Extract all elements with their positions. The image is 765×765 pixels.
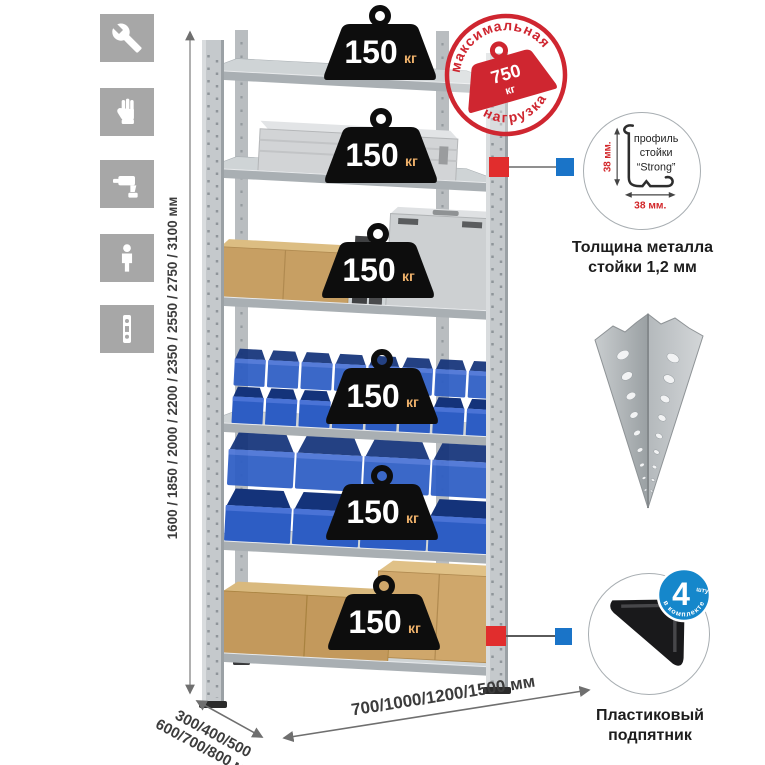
svg-text:кг: кг [404,50,417,66]
profile-caption-line1: Толщина металла [535,238,750,258]
blue-marker-square [556,158,574,176]
profile-callout-connector [489,157,574,177]
depth-dimension-label: 300/400/500 600/700/800 мм [153,701,266,765]
profile-width-dim: 38 мм. [634,201,666,212]
svg-text:150: 150 [348,604,401,640]
foot-caption-line1: Пластиковый [550,706,750,726]
included-count-badge: 4 штуки в комплекте [656,567,712,623]
profile-label: “Strong” [637,162,676,174]
svg-text:150: 150 [346,378,399,414]
svg-text:150: 150 [344,34,397,70]
foot-caption-line2: подпятник [550,726,750,746]
profile-caption: Толщина металла стойки 1,2 мм [535,238,750,278]
svg-text:150: 150 [342,252,395,288]
upright-profile-image [585,300,715,520]
svg-text:кг: кг [402,268,415,284]
product-infographic: 1600 / 1850 / 2000 / 2200 / 2350 / 2550 … [0,0,765,765]
profile-height-dim: 38 мм. [602,141,613,172]
foot-caption: Пластиковый подпятник [550,706,750,746]
shelf-weight-badge: 150 кг [324,8,436,80]
svg-text:кг: кг [406,510,419,526]
blue-marker-square [555,628,572,645]
profile-label: стойки [640,147,673,159]
svg-text:кг: кг [408,620,421,636]
badge-count: 4 [672,576,690,612]
profile-caption-line2: стойки 1,2 мм [535,258,750,278]
svg-text:кг: кг [405,153,418,169]
foot-callout-connector [486,626,572,646]
shelf-weight-badge: 150 кг [325,111,437,183]
svg-text:150: 150 [346,494,399,530]
red-marker-square [489,157,509,177]
profile-detail-circle: 38 мм. 38 мм. профиль стойки “Strong” [583,112,701,230]
max-load-stamp: максимальная нагрузка 750 кг [433,2,579,148]
red-marker-square [486,626,506,646]
svg-text:кг: кг [406,394,419,410]
svg-text:150: 150 [345,137,398,173]
height-dimension-label: 1600 / 1850 / 2000 / 2200 / 2350 / 2550 … [165,197,180,540]
profile-label: профиль [634,133,679,145]
